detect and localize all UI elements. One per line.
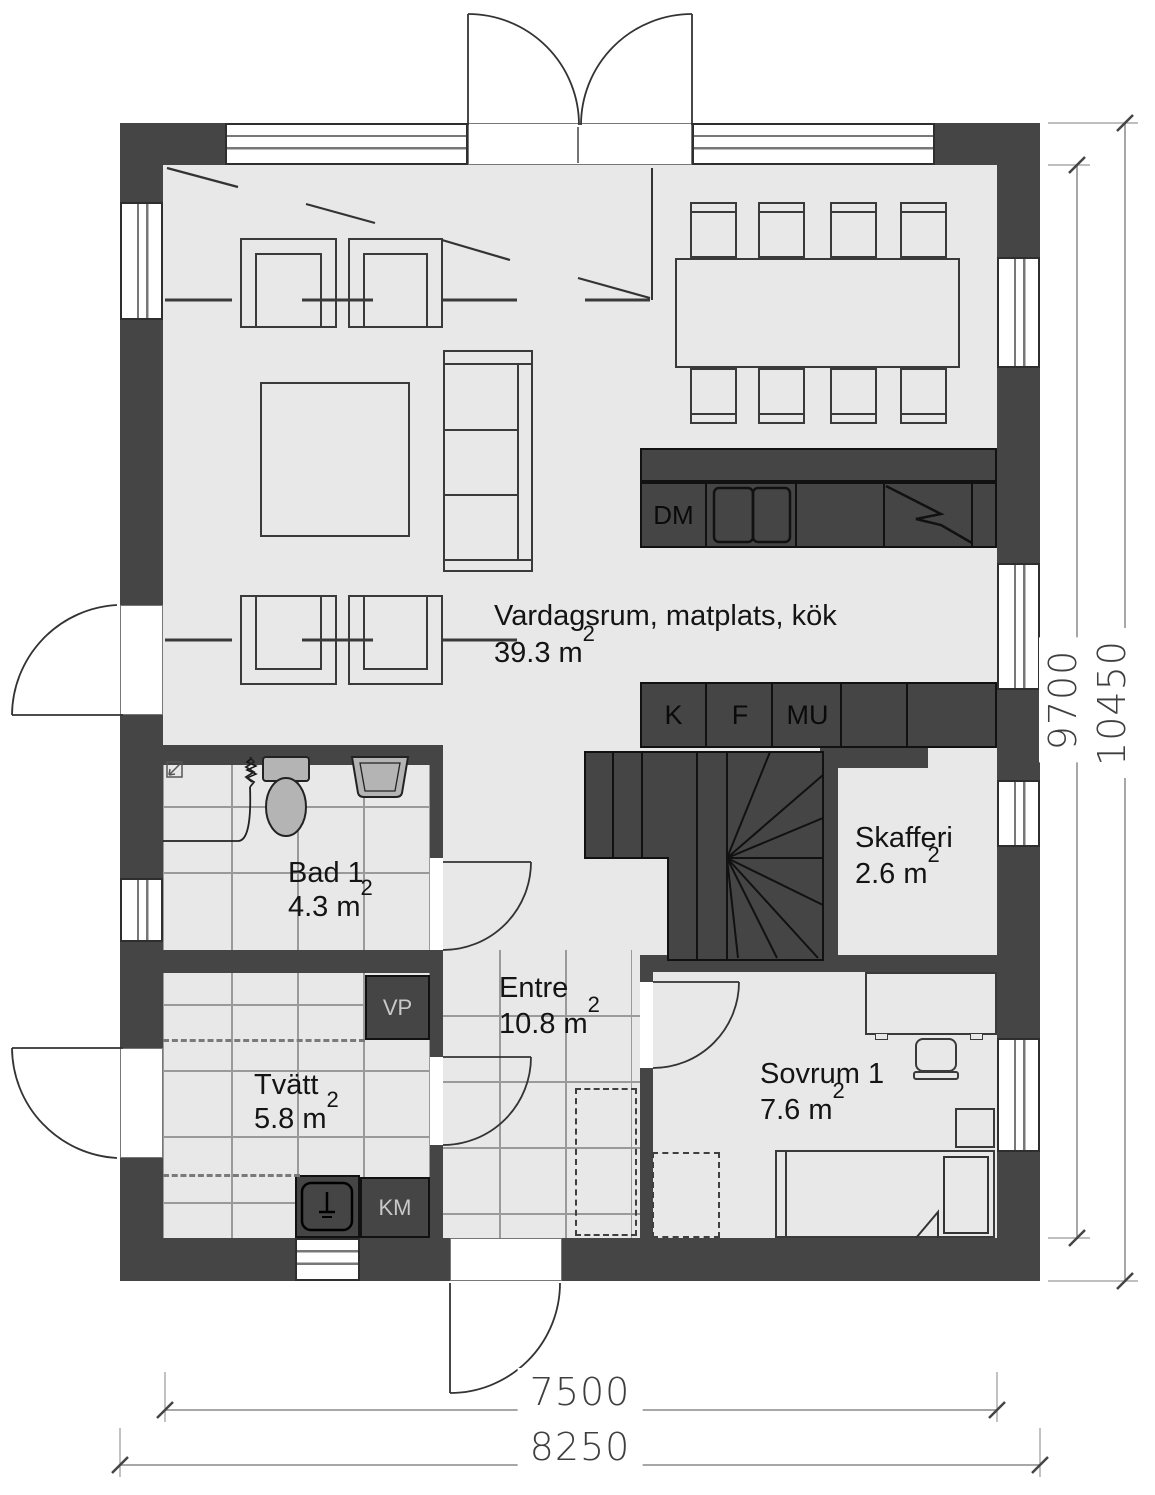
desk bbox=[865, 972, 997, 1035]
kitchen-cell-end bbox=[973, 482, 997, 548]
window-right-dining bbox=[997, 257, 1040, 368]
room-label-tvatt: Tvätt 5.8 m2 bbox=[254, 1068, 339, 1136]
tvatt-shelf-dashed-upper bbox=[163, 1039, 365, 1042]
skafferi-opening bbox=[928, 748, 997, 768]
cabinet-pantry-b bbox=[908, 682, 997, 748]
dining-chair bbox=[830, 202, 877, 258]
label-fridge: K bbox=[640, 682, 707, 748]
window-bottom-tvatt bbox=[295, 1238, 360, 1281]
window-right-living bbox=[997, 563, 1040, 690]
window-right-sovrum1 bbox=[997, 1038, 1040, 1152]
dining-chair bbox=[690, 202, 737, 258]
window-top-right bbox=[692, 123, 935, 165]
dimension-bottom-inner: 7500 bbox=[518, 1368, 643, 1416]
label-freezer: F bbox=[707, 682, 773, 748]
dining-chair bbox=[900, 202, 947, 258]
dining-chair bbox=[758, 202, 805, 258]
room-label-vardagsrum: Vardagsrum, matplats, kök 39.3 m2 bbox=[494, 598, 837, 672]
door-opening-left-living bbox=[120, 605, 163, 715]
dimension-right-inner: 9700 bbox=[1039, 638, 1087, 763]
label-heat-pump: VP bbox=[365, 975, 430, 1040]
room-label-entre: Entre 10.8 m2 bbox=[499, 970, 600, 1042]
dining-table bbox=[675, 258, 960, 368]
kitchen-cell-stove bbox=[885, 482, 973, 548]
armchair bbox=[240, 595, 337, 685]
window-left-bad1 bbox=[120, 878, 163, 942]
door-opening-sovrum1 bbox=[640, 982, 653, 1068]
dimension-right-outer: 10450 bbox=[1088, 628, 1136, 778]
floor-plan: Vardagsrum, matplats, kök 39.3 m2 Bad 1 … bbox=[0, 0, 1155, 1495]
wall-bad1-tvatt-divider bbox=[163, 950, 443, 973]
room-label-bad1: Bad 1 4.3 m2 bbox=[288, 856, 373, 924]
window-left-living bbox=[120, 202, 163, 320]
bed bbox=[775, 1150, 995, 1238]
label-washing-machine: KM bbox=[360, 1177, 430, 1238]
door-opening-tvatt bbox=[430, 1057, 443, 1145]
dining-chair bbox=[830, 368, 877, 424]
window-top-left bbox=[225, 123, 468, 165]
wall-skafferi-top bbox=[820, 748, 928, 768]
desk-chair bbox=[915, 1038, 957, 1072]
wardrobe-dashed bbox=[652, 1152, 720, 1238]
desk-foot bbox=[970, 1033, 983, 1040]
wall-bad1-top bbox=[163, 745, 443, 765]
stair-upper-run bbox=[585, 752, 823, 858]
dimension-bottom-outer: 8250 bbox=[518, 1423, 643, 1471]
coffee-table bbox=[260, 382, 410, 537]
dining-chair bbox=[758, 368, 805, 424]
door-opening-bottom-entre bbox=[450, 1238, 562, 1281]
door-opening-main-top bbox=[468, 123, 692, 165]
room-label-sovrum1: Sovrum 1 7.6 m2 bbox=[760, 1056, 884, 1128]
dining-chair bbox=[690, 368, 737, 424]
stair-lower-run bbox=[668, 858, 823, 960]
door-opening-bad1 bbox=[430, 858, 443, 950]
armchair bbox=[348, 595, 443, 685]
room-label-skafferi: Skafferi 2.6 m2 bbox=[855, 820, 953, 892]
kitchen-cell-sink bbox=[707, 482, 797, 548]
door-opening-left-tvatt bbox=[120, 1048, 163, 1158]
kitchen-cell-counter bbox=[797, 482, 885, 548]
sofa bbox=[443, 350, 533, 572]
label-dishwasher: DM bbox=[640, 498, 707, 532]
entre-dashed-area bbox=[575, 1088, 637, 1236]
window-right-skafferi bbox=[997, 780, 1040, 847]
nightstand bbox=[955, 1108, 995, 1148]
dining-chair bbox=[900, 368, 947, 424]
armchair bbox=[240, 238, 337, 328]
left-door-swings bbox=[12, 605, 123, 1158]
label-microwave: MU bbox=[773, 682, 842, 748]
laundry-sink-unit bbox=[295, 1175, 360, 1238]
desk-chair-backrest bbox=[913, 1071, 959, 1080]
tvatt-shelf-dashed-lower bbox=[163, 1174, 300, 1177]
desk-foot bbox=[875, 1033, 888, 1040]
cabinet-pantry-a bbox=[842, 682, 908, 748]
kitchen-counter-back bbox=[640, 448, 997, 482]
armchair bbox=[348, 238, 443, 328]
